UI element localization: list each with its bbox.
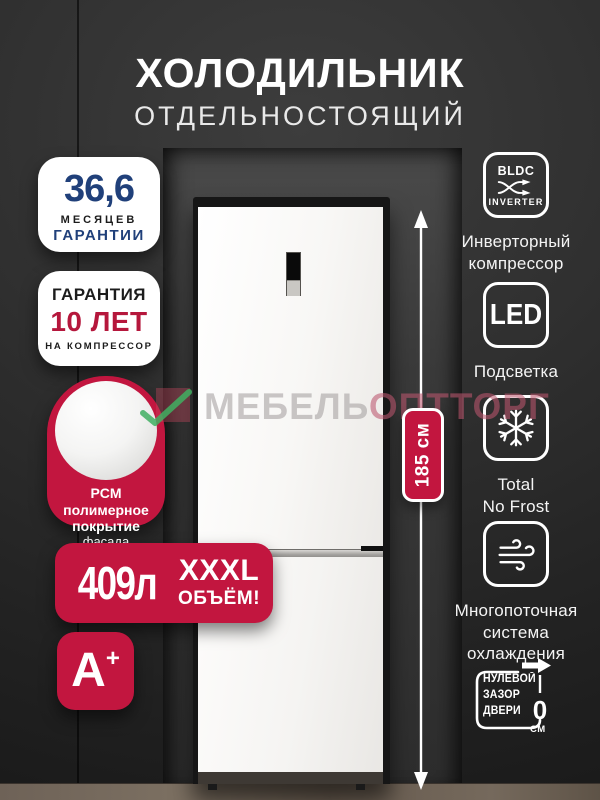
- height-badge: 185 см: [402, 408, 444, 502]
- warranty-months-value: 36,6: [38, 170, 160, 208]
- watermark: МЕБЕЛЬОПТТОРГ: [140, 384, 550, 430]
- badge-volume: 409л XXXL ОБЪЁМ!: [55, 543, 273, 623]
- fridge-display-screen: [287, 253, 300, 280]
- zero-gap-unit: см: [530, 724, 556, 735]
- volume-value: 409л: [78, 556, 156, 610]
- energy-class-letter: A: [71, 647, 106, 695]
- feature-label-multiflow: Многопоточная система охлаждения: [452, 600, 580, 665]
- compressor-warranty-value: 10 ЛЕТ: [38, 305, 160, 339]
- bldc-inverter-icon: BLDC INVERTER: [483, 152, 549, 218]
- feature-inverter: BLDC INVERTER Инверторный компрессор: [452, 152, 580, 274]
- watermark-text: МЕБЕЛЬОПТТОРГ: [204, 386, 550, 428]
- watermark-logo-icon: [140, 384, 194, 430]
- feature-led: LED Подсветка: [452, 282, 580, 383]
- compressor-warranty-subtitle: НА КОМПРЕССОР: [38, 341, 160, 352]
- fridge-foot-right: [356, 784, 365, 790]
- fridge-plinth: [198, 772, 383, 784]
- feature-label-inverter: Инверторный компрессор: [452, 231, 580, 274]
- coating-line1: PCM полимерное: [47, 485, 165, 518]
- wood-floor: [0, 783, 600, 800]
- led-icon-text: LED: [490, 299, 542, 332]
- airflow-icon: [483, 521, 549, 587]
- bldc-icon-text-bottom: INVERTER: [488, 197, 543, 207]
- feature-label-led: Подсветка: [452, 361, 580, 383]
- fridge-display-buttons: [287, 280, 300, 296]
- badge-warranty-months: 36,6 МЕСЯЦЕВ ГАРАНТИИ: [38, 157, 160, 252]
- feature-zero-gap: НУЛЕВОЙ ЗАЗОР ДВЕРИ 0 см: [452, 658, 580, 738]
- energy-class-plus: +: [106, 645, 120, 673]
- feature-label-no-frost: Total No Frost: [452, 474, 580, 517]
- warranty-months-unit: МЕСЯЦЕВ: [38, 214, 160, 226]
- watermark-brand-gray: МЕБЕЛЬ: [204, 386, 369, 427]
- bldc-icon-text-top: BLDC: [498, 164, 535, 178]
- arrow-head-down-icon: [414, 772, 428, 790]
- arrow-head-up-icon: [414, 210, 428, 228]
- height-value: 185 см: [412, 423, 434, 488]
- warranty-months-label: ГАРАНТИИ: [38, 227, 160, 244]
- feature-multiflow: Многопоточная система охлаждения: [452, 521, 580, 665]
- page-subtitle: ОТДЕЛЬНОСТОЯЩИЙ: [0, 101, 600, 132]
- volume-label: ОБЪЁМ!: [178, 588, 260, 610]
- led-icon: LED: [483, 282, 549, 348]
- zero-gap-value: 0: [528, 695, 552, 726]
- product-banner: ХОЛОДИЛЬНИК ОТДЕЛЬНОСТОЯЩИЙ 185 см 36,6 …: [0, 0, 600, 800]
- fridge-foot-left: [208, 784, 217, 790]
- fridge-divider-accent: [361, 546, 383, 551]
- coating-text: PCM полимерное покрытие фасада: [47, 485, 165, 549]
- zero-gap-icon: НУЛЕВОЙ ЗАЗОР ДВЕРИ 0 см: [470, 658, 562, 738]
- badge-energy-class: A +: [57, 632, 134, 710]
- volume-highlight: XXXL: [178, 556, 260, 586]
- compressor-warranty-title: ГАРАНТИЯ: [38, 285, 160, 305]
- refrigerator-image: [193, 197, 390, 784]
- badge-compressor-warranty: ГАРАНТИЯ 10 ЛЕТ НА КОМПРЕССОР: [38, 271, 160, 366]
- crossed-arrows-icon: [496, 179, 536, 196]
- watermark-brand-red: ОПТТОРГ: [369, 386, 550, 427]
- page-title: ХОЛОДИЛЬНИК: [0, 50, 600, 97]
- fridge-control-display: [286, 252, 301, 296]
- coating-line2: покрытие: [47, 518, 165, 535]
